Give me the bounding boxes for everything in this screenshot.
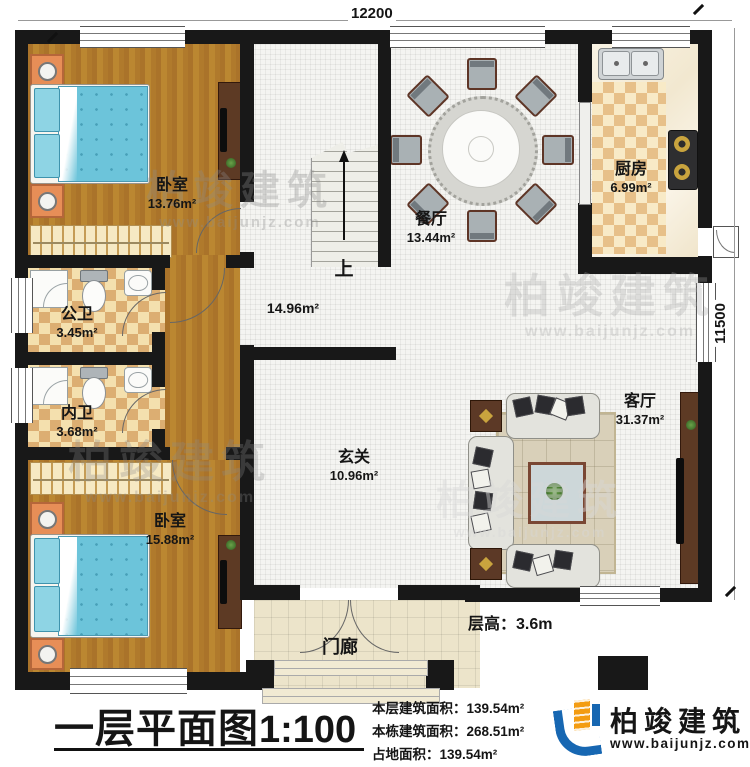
window	[580, 586, 660, 606]
room-label-foyer: 玄关 10.96m²	[330, 448, 378, 484]
shower-tray	[30, 270, 68, 308]
sofa-cushion	[471, 469, 492, 490]
wall	[28, 352, 165, 365]
dimension-label-right: 11500	[712, 300, 729, 347]
room-area: 14.96m²	[267, 300, 319, 318]
plant-icon	[226, 158, 236, 168]
stat-row: 占地面积：139.54m²	[372, 744, 524, 767]
nightstand	[30, 54, 64, 88]
tv-bedroom2	[220, 560, 227, 604]
shower-tray	[30, 367, 68, 405]
window	[70, 668, 187, 694]
dining-chair	[467, 58, 497, 90]
tv-bedroom1	[220, 108, 227, 152]
wall	[28, 255, 170, 268]
wall	[28, 447, 170, 460]
wall	[226, 255, 254, 268]
wardrobe	[30, 462, 172, 495]
plant-icon	[546, 483, 563, 500]
wall	[578, 44, 592, 102]
room-label-porch: 门廊	[322, 636, 358, 659]
room-name: 厨房	[610, 160, 651, 180]
room-area: 13.76m²	[148, 196, 196, 212]
dimension-tick	[693, 4, 704, 15]
dining-chair	[467, 210, 497, 242]
sofa-cushion	[472, 446, 493, 467]
stat-row: 本层建筑面积：139.54m²	[372, 698, 524, 721]
stat-value: 139.54m²	[440, 747, 498, 762]
stairs-up-text: 上	[334, 258, 353, 282]
room-name: 公卫	[56, 305, 97, 325]
bathroom-sink	[124, 270, 152, 296]
room-name: 卧室	[148, 176, 196, 196]
window	[11, 278, 33, 333]
window	[80, 26, 185, 48]
stove-burner	[674, 136, 690, 152]
kitchen-sink-basin	[631, 51, 659, 76]
side-table	[470, 400, 502, 432]
porch-pier	[246, 660, 274, 690]
nightstand	[30, 502, 64, 536]
stat-label: 本层建筑面积：	[372, 701, 467, 716]
dimension-line-right	[734, 28, 735, 600]
stairs-up-arrow-head	[339, 150, 349, 162]
side-table	[470, 548, 502, 580]
room-label-bedroom1: 卧室 13.76m²	[148, 176, 196, 212]
bed-blanket	[58, 86, 148, 182]
plant-icon	[226, 540, 236, 550]
bathroom-sink	[124, 367, 152, 393]
wall	[226, 447, 254, 460]
sofa-cushion	[565, 396, 586, 417]
bed-pillow	[34, 538, 60, 584]
drawing-title-text: 一层平面图	[54, 707, 259, 751]
brand-logo-swoosh-icon	[553, 705, 602, 760]
wall	[246, 585, 300, 600]
pier	[598, 656, 648, 690]
room-label-kitchen: 厨房 6.99m²	[610, 160, 651, 196]
wall	[240, 460, 254, 600]
room-name: 内卫	[56, 404, 97, 424]
area-statistics: 本层建筑面积：139.54m² 本栋建筑面积：268.51m² 占地面积：139…	[372, 698, 524, 767]
porch-steps	[274, 660, 428, 676]
room-area: 31.37m²	[616, 412, 664, 428]
brand-logo	[556, 698, 604, 754]
stat-value: 139.54m²	[467, 701, 525, 716]
wall	[240, 347, 396, 360]
stairs-up-arrow	[343, 160, 345, 240]
dining-chair	[542, 135, 574, 165]
wall	[578, 257, 712, 274]
room-name: 卧室	[146, 512, 194, 532]
sofa-cushion	[553, 550, 574, 571]
plant-icon	[686, 420, 696, 430]
room-name: 餐厅	[407, 210, 455, 230]
room-label-bath-private: 内卫 3.68m²	[56, 404, 97, 440]
floor-height-note: 层高：3.6m	[468, 610, 552, 634]
sofa-cushion	[512, 550, 533, 571]
room-name: 客厅	[616, 392, 664, 412]
room-area: 3.68m²	[56, 424, 97, 440]
room-name: 门廊	[322, 636, 358, 659]
room-name: 玄关	[330, 448, 378, 468]
tv-living	[676, 458, 684, 544]
room-area: 3.45m²	[56, 325, 97, 341]
sofa-cushion	[512, 396, 533, 417]
wall	[152, 365, 165, 387]
floor-plan-canvas: 12200 11500 柏竣建筑 www.baijunjz.com 柏竣建筑 w…	[0, 0, 750, 767]
dining-table-turntable	[468, 136, 494, 162]
stat-label: 占地面积：	[372, 747, 440, 762]
room-area: 6.99m²	[610, 180, 651, 196]
room-label-bath-public: 公卫 3.45m²	[56, 305, 97, 341]
brand-name: 柏竣建筑	[610, 700, 746, 740]
wardrobe	[30, 225, 172, 258]
bed-pillow	[34, 586, 60, 632]
stat-label: 本栋建筑面积：	[372, 724, 467, 739]
sofa-cushion	[470, 512, 491, 533]
kitchen-sliding-door	[579, 102, 591, 205]
wall	[240, 345, 254, 460]
window	[612, 26, 690, 48]
bed-pillow	[34, 88, 60, 132]
nightstand	[30, 184, 64, 218]
window	[390, 26, 545, 48]
brand-url: www.baijunjz.com	[610, 736, 750, 751]
room-label-bedroom2: 卧室 15.88m²	[146, 512, 194, 548]
stat-row: 本栋建筑面积：268.51m²	[372, 721, 524, 744]
room-label-living: 客厅 31.37m²	[616, 392, 664, 428]
room-area: 15.88m²	[146, 532, 194, 548]
wall	[398, 585, 480, 600]
drawing-scale: 1:100	[259, 709, 356, 751]
dining-chair	[390, 135, 422, 165]
bed-pillow	[34, 134, 60, 178]
wall	[698, 30, 712, 228]
nightstand	[30, 638, 64, 670]
room-area: 10.96m²	[330, 468, 378, 484]
bed-blanket	[58, 536, 148, 636]
stair-wall	[378, 44, 391, 267]
kitchen-sink-basin	[602, 51, 630, 76]
wall	[240, 44, 254, 202]
room-area: 13.44m²	[407, 230, 455, 246]
room-label-hall: 14.96m²	[267, 300, 319, 318]
wall	[15, 30, 28, 690]
porch-pier	[426, 660, 454, 690]
room-label-dining: 餐厅 13.44m²	[407, 210, 455, 246]
stairs-up-label: 上	[334, 258, 353, 282]
wall	[152, 268, 165, 290]
title-underline	[54, 748, 364, 751]
drawing-title: 一层平面图1:100	[54, 696, 356, 754]
stove-burner	[674, 164, 690, 180]
stat-value: 268.51m²	[467, 724, 525, 739]
dimension-label-top: 12200	[348, 5, 396, 22]
window	[11, 368, 33, 423]
sofa-cushion	[473, 491, 493, 511]
wall	[578, 203, 592, 257]
